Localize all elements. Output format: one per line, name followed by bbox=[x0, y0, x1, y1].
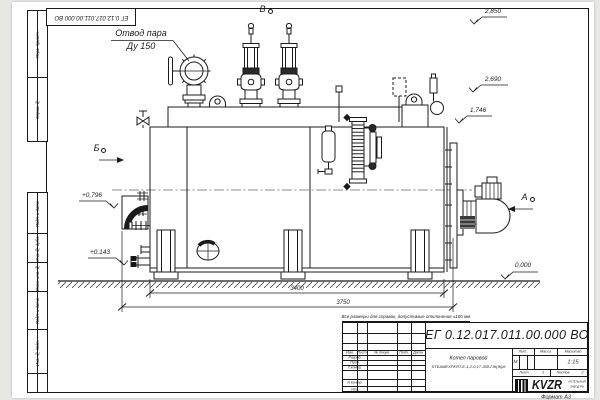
elevation-0000: 0,000 bbox=[508, 263, 538, 270]
callout-steam-outlet: Отвод пара bbox=[108, 29, 174, 38]
row-tkontr: Т.контр. bbox=[350, 366, 361, 368]
col-header-list: Лист bbox=[360, 351, 365, 353]
view-label-top: В bbox=[258, 5, 274, 14]
rear-flange-and-burner bbox=[445, 127, 510, 272]
row-nkontr: Н.контр. bbox=[350, 381, 361, 384]
litera-label: Лит. bbox=[518, 350, 528, 353]
sheet-label: Лист bbox=[519, 371, 530, 374]
elevation-0796: +0,796 bbox=[76, 193, 108, 200]
col-header-docnum: № докум. bbox=[375, 351, 389, 353]
blueprint-page: Перв. примен. Справ. № Подп. и дата Инв.… bbox=[0, 0, 600, 400]
dimension-3400: 3400 bbox=[282, 286, 312, 292]
view-ref-mark bbox=[268, 9, 273, 14]
safety-valve-left bbox=[238, 23, 265, 107]
kvzr-logo-glyph bbox=[515, 379, 528, 393]
kvzr-logo-sub1: КОТЕЛЬНЫЙ bbox=[573, 381, 581, 383]
dimension-3750: 3750 bbox=[328, 300, 358, 306]
elevation-0143: +0,143 bbox=[84, 250, 116, 257]
elevation-1746: 1,746 bbox=[463, 108, 493, 115]
elevation-2850: 2,850 bbox=[478, 9, 508, 16]
row-prov: Пров. bbox=[350, 361, 361, 363]
kvzr-logo-sub2: ЗАВОД РФ bbox=[573, 386, 581, 388]
col-header-podp: Подп. bbox=[401, 351, 407, 353]
sheet-value: 1 bbox=[540, 371, 546, 374]
masshtab-label: Масштаб bbox=[566, 350, 580, 353]
row-utv: Утв. bbox=[350, 388, 361, 391]
callout-dn150: Ду 150 bbox=[118, 42, 164, 51]
product-name-line1: Котел паровой bbox=[440, 355, 497, 362]
view-label-right: А bbox=[520, 193, 536, 202]
product-name-line2: STEAMEXPERT-E-1,2-0,17-350-ГЖ(Ж)И bbox=[443, 364, 495, 369]
view-ref-mark bbox=[530, 197, 535, 202]
format-label: Формат А3 bbox=[541, 394, 571, 399]
col-header-data: Дата bbox=[415, 351, 421, 353]
sheets-value: 2 bbox=[580, 371, 586, 374]
col-header-izm: Изм. bbox=[347, 351, 353, 353]
manhole-oval bbox=[197, 242, 219, 260]
left-elbow-and-nozzles bbox=[122, 111, 150, 268]
steam-outlet-valve bbox=[169, 55, 211, 108]
view-label-left: Б bbox=[92, 144, 108, 153]
row-razrab: Разраб. bbox=[350, 356, 361, 358]
title-block-doc-number: ЕГ 0.12.017.011.00.000 ВО bbox=[425, 323, 589, 348]
sheets-label: Листов bbox=[557, 371, 569, 374]
view-ref-mark bbox=[101, 148, 106, 153]
massa-label: Масса bbox=[540, 350, 550, 353]
kvzr-logo-text: KVZR bbox=[530, 376, 564, 393]
litera-value: М bbox=[513, 358, 517, 366]
safety-valve-right bbox=[276, 23, 303, 107]
reference-note: Все размеры для справок, допустимые откл… bbox=[342, 312, 470, 322]
scale-value: 1:15 bbox=[561, 357, 584, 367]
title-block: Изм. Лист № докум. Подп. Дата Разраб. Пр… bbox=[342, 322, 588, 392]
elevation-2690: 2,690 bbox=[478, 77, 508, 84]
